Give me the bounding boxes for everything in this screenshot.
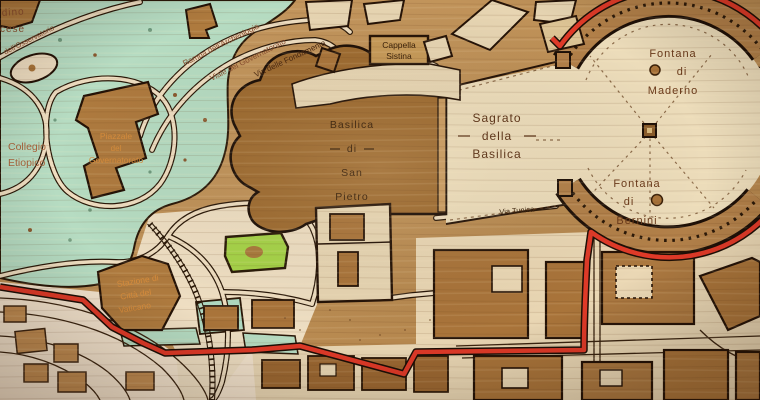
wooden-vatican-map: dino cese dell'Osservatorio Rampa dell'A… (0, 0, 760, 400)
photo-vignette (0, 0, 760, 400)
map-canvas: dino cese dell'Osservatorio Rampa dell'A… (0, 0, 760, 400)
